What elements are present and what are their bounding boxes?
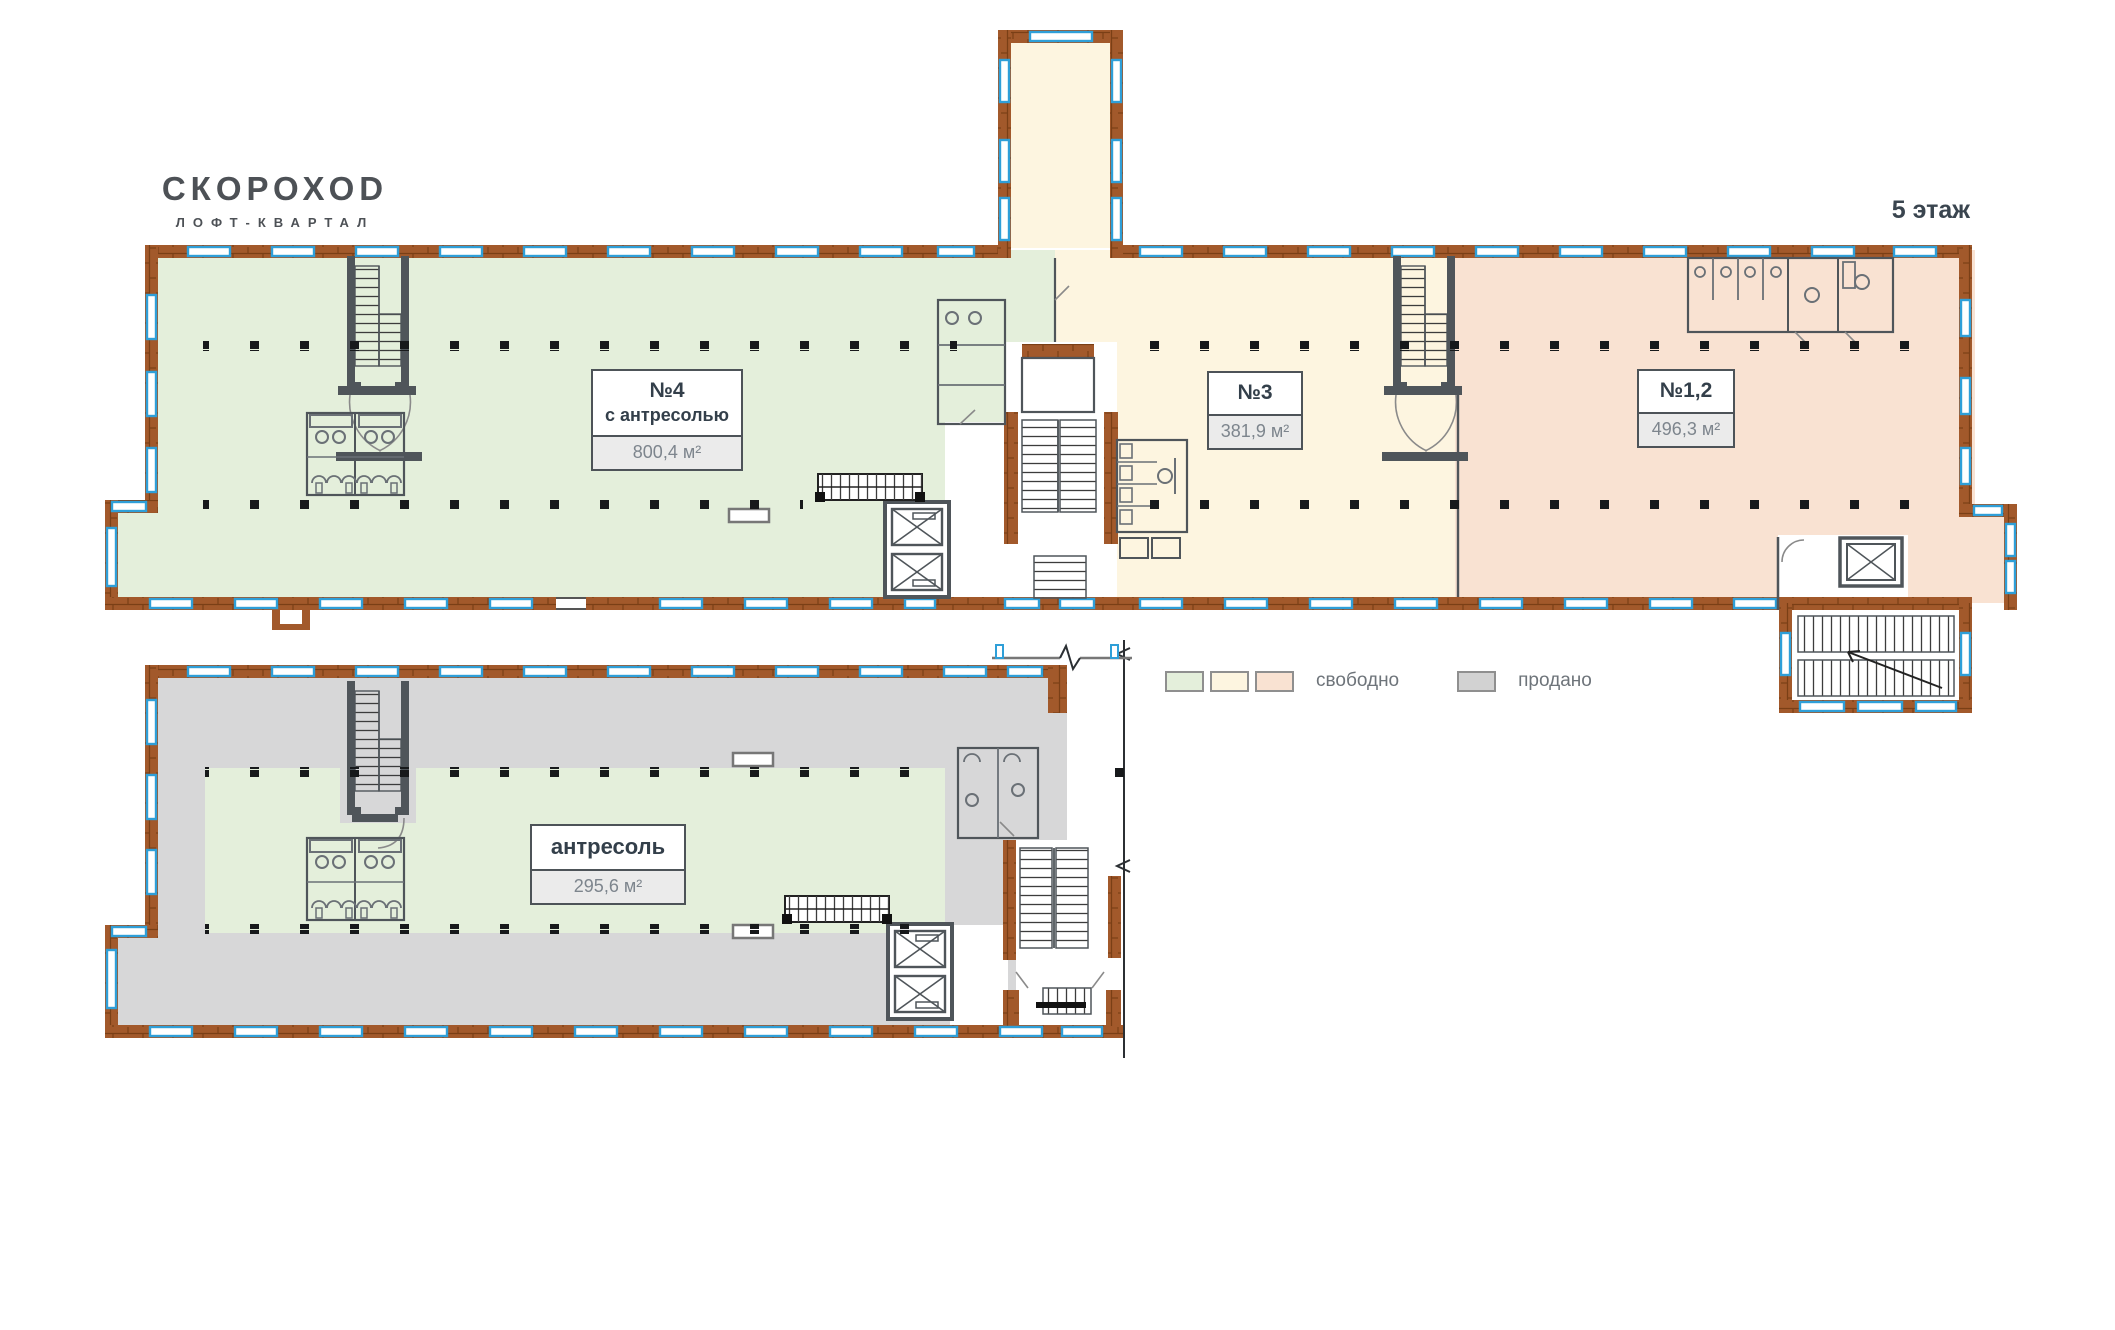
mezzanine-name: антресоль bbox=[536, 833, 680, 861]
zone-unit4-green bbox=[150, 250, 1010, 600]
unit-card-3[interactable]: №3 381,9 м² bbox=[1207, 371, 1303, 450]
unit-3-area: 381,9 м² bbox=[1209, 414, 1301, 448]
brand-name: СКОРОХОD bbox=[150, 170, 400, 208]
unit-4-subtitle: с антресолью bbox=[597, 404, 737, 427]
brand-logo: СКОРОХОD ЛОФТ-КВАРТАЛ bbox=[150, 170, 400, 230]
legend-sold-label: продано bbox=[1518, 670, 1592, 692]
legend-swatch-green bbox=[1165, 671, 1204, 692]
legend: свободно продано bbox=[1165, 670, 1592, 692]
zone-tower-cream bbox=[1008, 40, 1113, 248]
unit-card-4[interactable]: №4 с антресолью 800,4 м² bbox=[591, 369, 743, 471]
mezzanine-area: 295,6 м² bbox=[532, 869, 684, 903]
legend-available-label: свободно bbox=[1316, 670, 1399, 692]
legend-swatch-peach bbox=[1255, 671, 1294, 692]
unit-card-mezzanine[interactable]: антресоль 295,6 м² bbox=[530, 824, 686, 905]
brand-tagline: ЛОФТ-КВАРТАЛ bbox=[150, 215, 400, 230]
unit-1-2-name: №1,2 bbox=[1643, 378, 1729, 404]
legend-swatch-gray bbox=[1457, 671, 1496, 692]
legend-swatch-cream bbox=[1210, 671, 1249, 692]
unit-card-1-2[interactable]: №1,2 496,3 м² bbox=[1637, 369, 1735, 448]
unit-4-area: 800,4 м² bbox=[593, 435, 741, 469]
unit-3-name: №3 bbox=[1213, 380, 1297, 406]
unit-1-2-area: 496,3 м² bbox=[1639, 412, 1733, 446]
floor-label: 5 этаж bbox=[1790, 196, 1970, 225]
floor-plan-page: СКОРОХОD ЛОФТ-КВАРТАЛ 5 этаж №4 с антрес… bbox=[0, 0, 2115, 1330]
unit-4-name: №4 bbox=[597, 378, 737, 404]
